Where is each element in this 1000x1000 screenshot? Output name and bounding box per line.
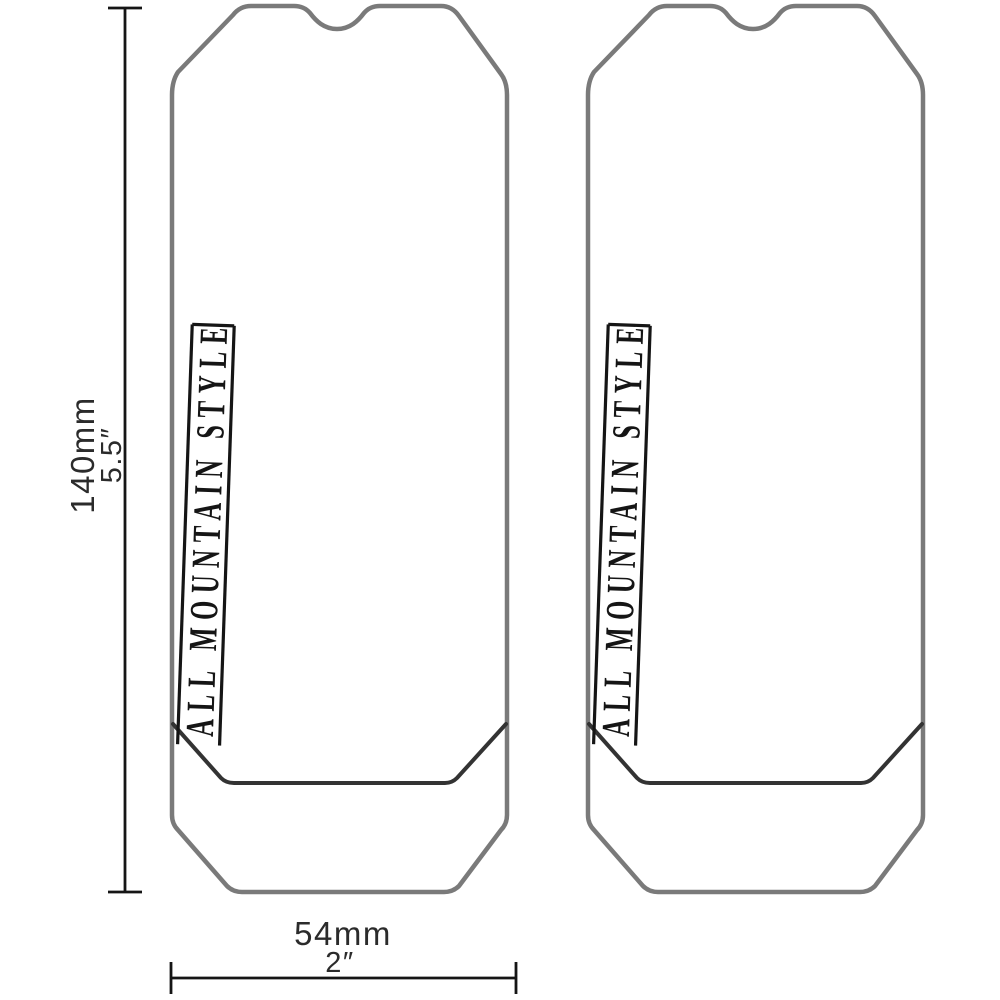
width-label-inch: 2″ — [325, 947, 354, 979]
logo-endcap — [192, 324, 234, 325]
protector-left-fold-line — [173, 724, 506, 783]
protector-right: ALL MOUNTAIN STYLE — [588, 6, 923, 892]
height-dimension: 140mm 5.5″ — [64, 8, 142, 892]
height-label-inch: 5.5″ — [96, 427, 128, 484]
protector-left: ALL MOUNTAIN STYLE — [172, 6, 507, 892]
diagram-canvas: ALL MOUNTAIN STYLE ALL MOUNTAIN STYLE 14… — [0, 0, 1000, 1000]
dimension-diagram: ALL MOUNTAIN STYLE ALL MOUNTAIN STYLE 14… — [0, 0, 1000, 1000]
protector-right-logo: ALL MOUNTAIN STYLE — [594, 324, 653, 745]
protector-left-logo: ALL MOUNTAIN STYLE — [178, 324, 237, 745]
protector-right-fold-line — [589, 724, 922, 783]
width-dimension: 54mm 2″ — [171, 915, 516, 994]
logo-endcap — [608, 324, 650, 325]
logo-text: ALL MOUNTAIN STYLE — [178, 327, 237, 738]
logo-text: ALL MOUNTAIN STYLE — [594, 327, 653, 738]
